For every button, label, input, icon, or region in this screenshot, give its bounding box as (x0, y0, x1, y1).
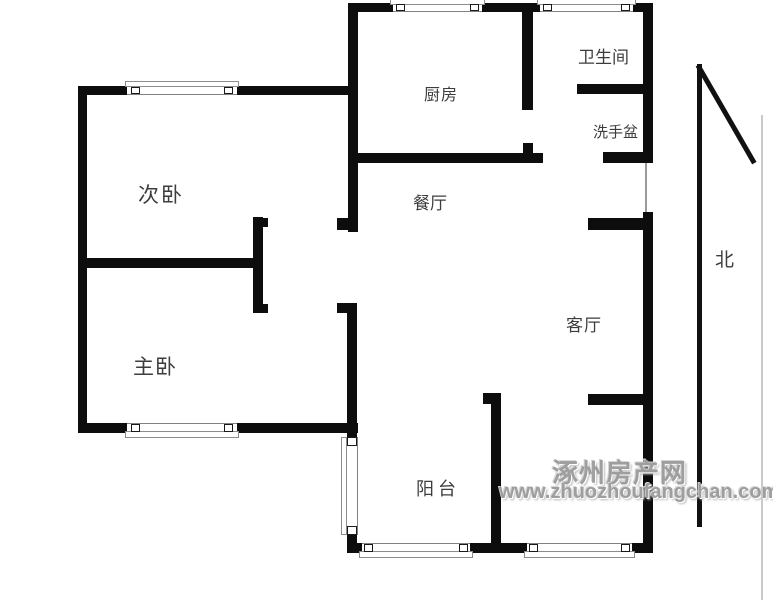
wall-kitchen-right-stub (523, 143, 533, 155)
entry-door-line (645, 163, 647, 212)
window-frame (524, 551, 635, 558)
north-arrow-diagonal (696, 64, 757, 164)
north-arrow-line (697, 64, 702, 527)
wall-balcony-divider (491, 393, 501, 553)
doorframe-divider-bottom (263, 304, 268, 313)
north-label: 北 (715, 251, 734, 272)
wall-hall-lower (347, 303, 357, 433)
window-end (621, 544, 630, 552)
window-end (224, 424, 233, 432)
doorframe-divider-top (263, 218, 268, 227)
wall-living-stub (588, 394, 643, 405)
window-end (347, 437, 357, 446)
wall-balcony-divider-hook (483, 393, 491, 404)
room-label-master-bedroom: 主卧 (133, 356, 177, 379)
floor-plan: 北 次卧 厨房 卫生间 洗手盆 餐厅 主卧 客厅 阳台 涿州房产网 www.zh… (0, 0, 773, 600)
window-end (224, 87, 233, 94)
window-end (396, 4, 405, 11)
window-frame (125, 431, 239, 438)
wall-bathroom-bottom (577, 84, 643, 94)
window-frame (125, 81, 239, 87)
window-end (529, 544, 538, 552)
room-label-kitchen: 厨房 (424, 87, 458, 105)
master-bottom-window (127, 423, 237, 433)
window-end (470, 4, 479, 11)
watermark-site-url: www.zhuozhoufangchan.com (499, 481, 773, 504)
wall-hall-upper-doorframe (337, 218, 348, 230)
living-bottom-window (527, 543, 632, 553)
room-label-living: 客厅 (566, 317, 602, 336)
window-end (131, 87, 140, 94)
room-label-dining: 餐厅 (413, 195, 447, 214)
room-label-washbasin: 洗手盆 (593, 125, 638, 142)
wall-bedroom-divider (78, 258, 253, 268)
window-end (459, 544, 468, 552)
wall-kitchen-right (522, 9, 533, 110)
balcony-left-window (346, 437, 358, 535)
wall-bedroom-divider-vertical (253, 217, 263, 313)
bathroom-top-window (540, 3, 633, 12)
kitchen-top-window (393, 3, 482, 12)
window-end (131, 424, 140, 432)
room-label-secondary-bedroom: 次卧 (138, 184, 184, 207)
balcony-bottom-window (362, 543, 470, 553)
wall-entry-stub (588, 218, 643, 230)
image-right-edge (761, 115, 763, 600)
room-label-bathroom: 卫生间 (578, 49, 629, 68)
wall-right-upper (643, 3, 653, 163)
window-end (347, 526, 357, 535)
window-frame (359, 551, 473, 558)
window-end (543, 4, 552, 11)
window-end (621, 4, 630, 11)
window-frame (341, 437, 347, 535)
wall-kitchen-bottom (348, 153, 543, 163)
bedroom2-top-window (127, 86, 237, 95)
wall-hall-lower-doorframe (337, 303, 347, 313)
window-end (364, 544, 373, 552)
wall-kitchen-left (348, 3, 358, 232)
room-label-balcony: 阳台 (416, 480, 460, 500)
